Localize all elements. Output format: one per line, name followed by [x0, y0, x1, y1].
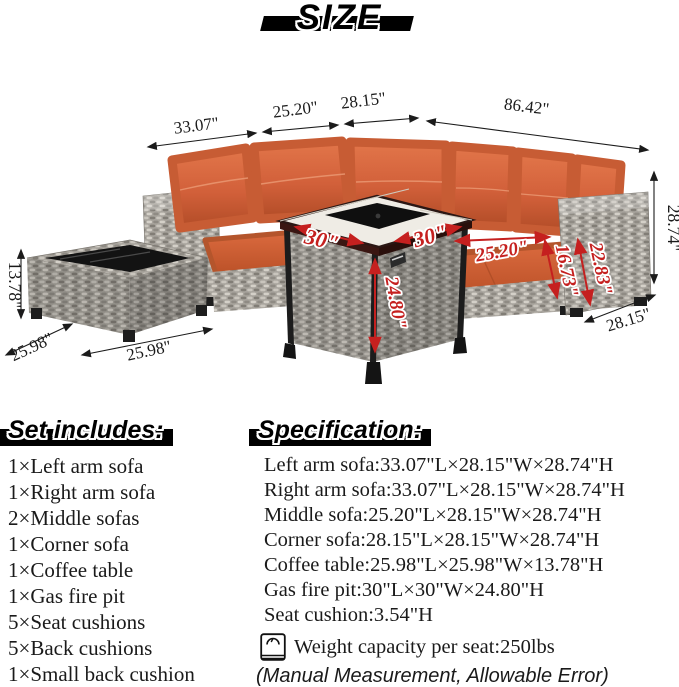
spec-item: Seat cushion:3.54"H: [264, 603, 679, 628]
list-item: 1×Right arm sofa: [8, 479, 254, 505]
list-item: 1×Coffee table: [8, 557, 254, 583]
spec-item: Right arm sofa:33.07"L×28.15"W×28.74"H: [264, 478, 679, 503]
weight-capacity-text: Weight capacity per seat:250lbs: [294, 636, 555, 659]
spec-item: Coffee table:25.98"L×25.98"W×13.78"H: [264, 553, 679, 578]
dim-table-height: 13.78": [5, 262, 25, 309]
set-includes-list: 1×Left arm sofa 1×Right arm sofa 2×Middl…: [8, 453, 254, 687]
dim-total-length: 86.42": [503, 94, 550, 118]
dim-corner-length: 28.15": [340, 88, 387, 112]
dim-left-sofa-length: 33.07": [173, 113, 220, 137]
list-item: 5×Seat cushions: [8, 609, 254, 635]
furniture-dimension-diagram: 33.07" 25.20" 28.15" 86.42" 28.74" 28.15…: [0, 0, 679, 410]
list-item: 2×Middle sofas: [8, 505, 254, 531]
specification-column: Specification: Left arm sofa:33.07"L×28.…: [254, 416, 679, 687]
list-item: 1×Gas fire pit: [8, 583, 254, 609]
spec-item: Corner sofa:28.15"L×28.15"W×28.74"H: [264, 528, 679, 553]
dim-middle-sofa-length: 25.20": [272, 97, 319, 121]
list-item: 1×Corner sofa: [8, 531, 254, 557]
list-item: 1×Small back cushion: [8, 661, 254, 687]
details-section: Set includes: 1×Left arm sofa 1×Right ar…: [0, 410, 679, 687]
dim-table-depth: 25.98": [7, 329, 56, 365]
spec-item: Left arm sofa:33.07"L×28.15"W×28.74"H: [264, 453, 679, 478]
spec-item: Middle sofa:25.20"L×28.15"W×28.74"H: [264, 503, 679, 528]
dim-sofa-depth: 28.15": [604, 304, 653, 335]
set-includes-column: Set includes: 1×Left arm sofa 1×Right ar…: [0, 416, 254, 687]
list-item: 5×Back cushions: [8, 635, 254, 661]
measurement-note: (Manual Measurement, Allowable Error): [256, 665, 679, 687]
set-includes-heading: Set includes:: [8, 416, 164, 445]
dim-sofa-height: 28.74": [664, 205, 679, 252]
spec-item: Gas fire pit:30"L×30"W×24.80"H: [264, 578, 679, 603]
weight-capacity-row: Weight capacity per seat:250lbs: [260, 633, 679, 661]
size-title: SIZE: [260, 0, 420, 38]
product-size-infographic: 33.07" 25.20" 28.15" 86.42" 28.74" 28.15…: [0, 0, 679, 687]
list-item: 1×Left arm sofa: [8, 453, 254, 479]
specification-list: Left arm sofa:33.07"L×28.15"W×28.74"H Ri…: [264, 453, 679, 628]
size-diagram-stage: 33.07" 25.20" 28.15" 86.42" 28.74" 28.15…: [0, 0, 679, 410]
weight-scale-icon: [260, 633, 286, 661]
size-title-banner: SIZE: [260, 1, 420, 41]
specification-heading: Specification:: [258, 416, 422, 445]
coffee-table-illustration: [27, 240, 208, 342]
